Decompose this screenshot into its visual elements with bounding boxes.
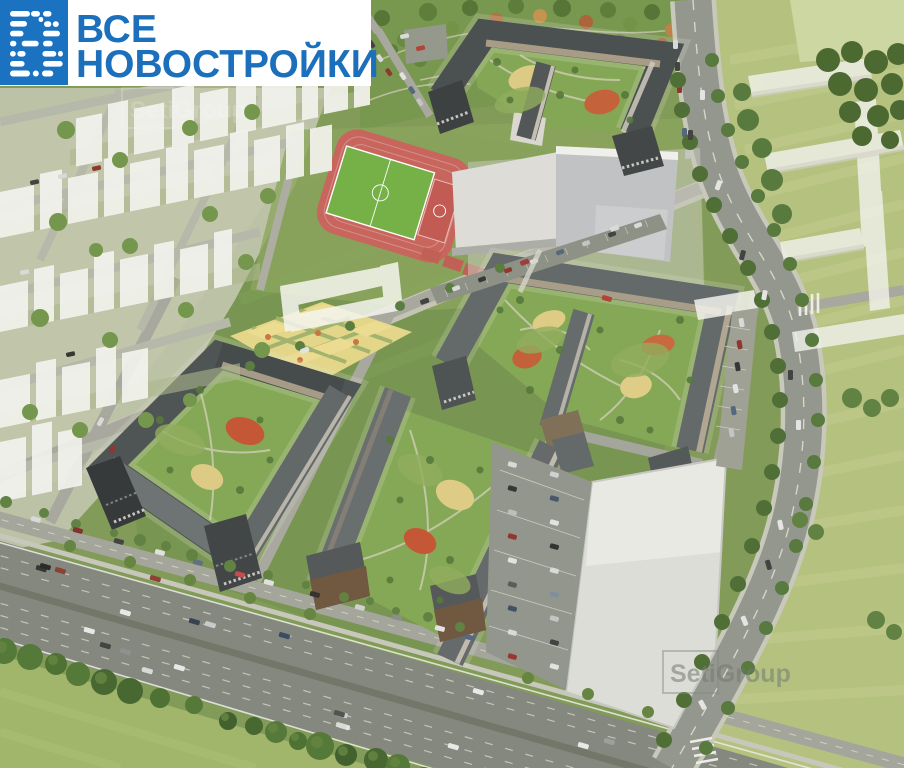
svg-text:НОВОСТРОЙКИ: НОВОСТРОЙКИ [76, 41, 379, 86]
